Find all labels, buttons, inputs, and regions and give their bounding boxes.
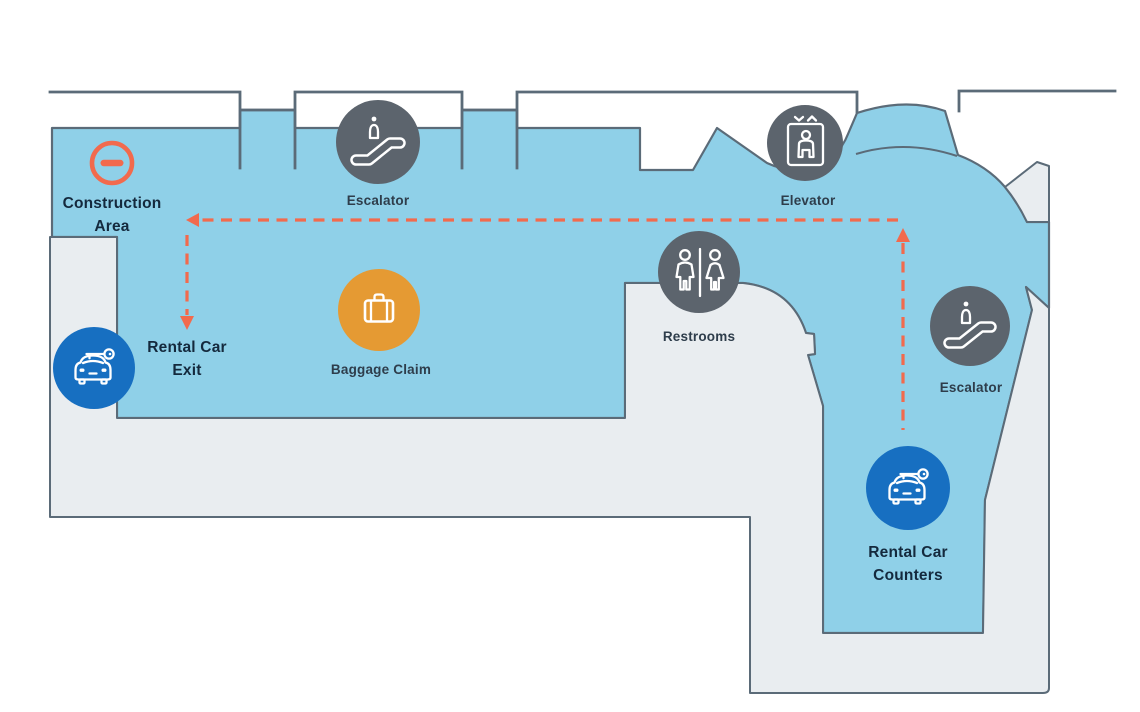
construction-area-label: Construction Area [32, 192, 192, 238]
rental-car-exit-label-line2: Exit [107, 359, 267, 382]
restrooms-icon [658, 231, 740, 313]
elevator-label: Elevator [738, 193, 878, 208]
escalator-right-icon [930, 286, 1010, 366]
baggage-claim-icon [338, 269, 420, 351]
escalator-top-label: Escalator [308, 193, 448, 208]
escalator-top-icon [336, 100, 420, 184]
escalator-right-label: Escalator [901, 380, 1041, 395]
rental-car-counters-label-line2: Counters [828, 564, 988, 587]
rental-car-counters-label: Rental Car Counters [828, 541, 988, 587]
baggage-claim-label: Baggage Claim [301, 362, 461, 377]
construction-area-label-line1: Construction [32, 192, 192, 215]
elevator-icon [767, 105, 843, 181]
terminal-map: Construction Area Escalator Elevator Res… [0, 0, 1140, 712]
rental-car-exit-label: Rental Car Exit [107, 336, 267, 382]
restrooms-label: Restrooms [629, 329, 769, 344]
rental-car-counters-label-line1: Rental Car [828, 541, 988, 564]
rental-car-counters-icon [866, 446, 950, 530]
rental-car-exit-label-line1: Rental Car [107, 336, 267, 359]
construction-area-label-line2: Area [32, 215, 192, 238]
